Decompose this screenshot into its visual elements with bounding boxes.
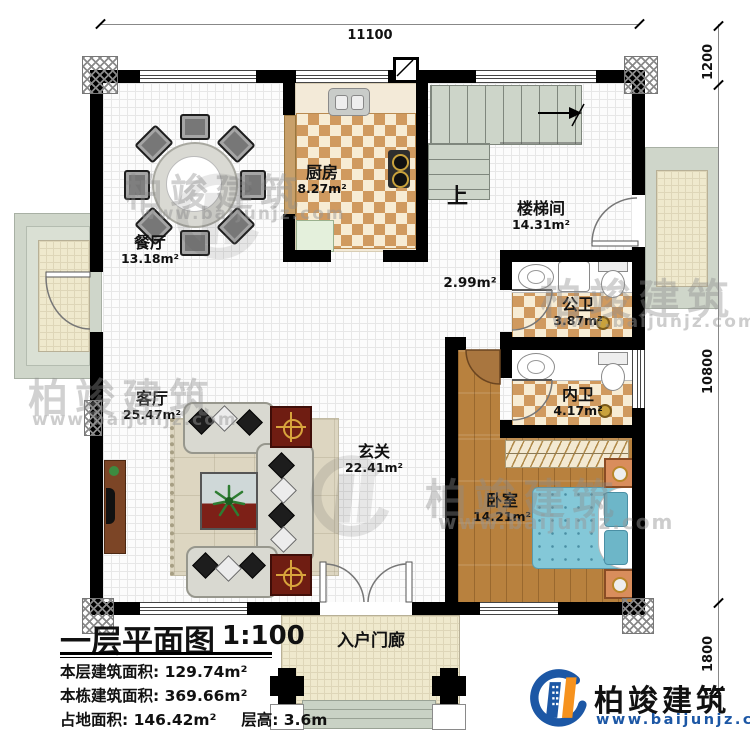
wall-segment bbox=[247, 602, 320, 615]
kitchen-fridge bbox=[296, 220, 334, 252]
wall-segment bbox=[632, 408, 645, 615]
window bbox=[480, 602, 558, 615]
wall-segment bbox=[383, 250, 428, 262]
room-name: 玄关 bbox=[345, 443, 403, 461]
stair-upper-flight bbox=[430, 85, 582, 145]
room-name: 厨房 bbox=[297, 164, 346, 182]
side-table bbox=[270, 406, 312, 448]
window bbox=[632, 350, 645, 408]
right-terrace-floor bbox=[656, 170, 708, 287]
wall-segment bbox=[500, 262, 512, 290]
stairwell-label: 楼梯间 14.31m² bbox=[512, 200, 570, 233]
wall-segment bbox=[458, 337, 466, 350]
wall-segment bbox=[90, 332, 103, 615]
stat-value: 369.66m² bbox=[165, 687, 248, 705]
room-area: 3.87m² bbox=[553, 314, 602, 328]
window bbox=[476, 70, 596, 83]
room-area: 13.18m² bbox=[121, 252, 179, 266]
kitchen-stove bbox=[388, 150, 410, 188]
tv-icon bbox=[106, 488, 115, 524]
foyer-label: 玄关 22.41m² bbox=[345, 443, 403, 476]
dimension-line bbox=[100, 24, 640, 25]
room-area: 25.47m² bbox=[123, 408, 181, 422]
dimension-line bbox=[718, 24, 719, 694]
wall-segment bbox=[632, 247, 645, 350]
company-website: www.baijunjz.com bbox=[596, 712, 750, 728]
kitchen-label: 厨房 8.27m² bbox=[297, 164, 346, 197]
room-name: 内卫 bbox=[553, 386, 602, 404]
dining-chair bbox=[124, 170, 150, 200]
plant-icon bbox=[202, 474, 256, 528]
stat-label: 层高: bbox=[241, 711, 278, 729]
kitchen-sink bbox=[328, 88, 370, 116]
wall-segment bbox=[500, 250, 645, 262]
stair-up-label: 上 bbox=[447, 180, 468, 210]
stat-value: 146.42m² bbox=[134, 711, 217, 729]
wall-segment bbox=[416, 83, 428, 262]
hallway-label: 2.99m² bbox=[443, 276, 496, 292]
wall-segment bbox=[90, 70, 103, 272]
wall-segment bbox=[500, 350, 512, 378]
public-bath-toilet bbox=[601, 270, 625, 298]
dimension-label: 10800 bbox=[701, 334, 716, 394]
window bbox=[140, 602, 247, 615]
bedroom-corridor-floor bbox=[458, 350, 500, 438]
wall-marker bbox=[84, 400, 102, 436]
stat-label: 本层建筑面积: bbox=[60, 663, 159, 681]
porch-column bbox=[432, 668, 466, 704]
room-area: 4.17m² bbox=[553, 404, 602, 418]
dimension-label: 11100 bbox=[340, 28, 400, 43]
wall-segment bbox=[500, 337, 645, 350]
dining-chair bbox=[240, 170, 266, 200]
bed-pillow bbox=[604, 530, 628, 565]
room-name: 公卫 bbox=[553, 296, 602, 314]
room-name: 客厅 bbox=[123, 390, 181, 408]
room-area: 14.31m² bbox=[512, 218, 570, 232]
wall-segment bbox=[500, 425, 645, 438]
stat-label: 本栋建筑面积: bbox=[60, 687, 159, 705]
left-terrace-floor bbox=[38, 240, 90, 352]
room-name: 卧室 bbox=[473, 492, 531, 510]
porch-step-side bbox=[432, 704, 466, 730]
stat-label: 占地面积: bbox=[60, 711, 128, 729]
side-table bbox=[270, 554, 312, 596]
room-area: 8.27m² bbox=[297, 182, 346, 196]
window bbox=[296, 70, 388, 83]
dimension-label: 1800 bbox=[701, 624, 716, 672]
room-name: 餐厅 bbox=[121, 234, 179, 252]
private-bath-label: 内卫 4.17m² bbox=[553, 386, 602, 419]
corner-marker bbox=[622, 598, 654, 634]
floor-plan-page: { "plan": { "title": "一层平面图", "scale": "… bbox=[0, 0, 750, 745]
public-bath-shower-tray bbox=[558, 261, 590, 292]
stat-value: 129.74m² bbox=[165, 663, 248, 681]
wall-segment bbox=[283, 83, 295, 115]
bedroom-label: 卧室 14.21m² bbox=[473, 492, 531, 525]
bed-pillow bbox=[604, 492, 628, 527]
corner-marker bbox=[624, 56, 658, 94]
dining-table-top bbox=[166, 156, 222, 212]
cabinet-plant-icon bbox=[109, 466, 119, 476]
room-area: 22.41m² bbox=[345, 461, 403, 475]
window bbox=[140, 70, 256, 83]
nightstand bbox=[604, 569, 634, 599]
room-area: 14.21m² bbox=[473, 510, 531, 524]
nightstand bbox=[604, 458, 634, 488]
stat-footprint-and-height: 占地面积: 146.42m² 层高: 3.6m bbox=[60, 708, 327, 730]
room-area: 2.99m² bbox=[443, 276, 496, 292]
stat-value: 3.6m bbox=[284, 711, 328, 729]
coffee-table bbox=[200, 472, 258, 530]
plan-scale: 1:100 bbox=[222, 621, 305, 651]
wall-segment bbox=[283, 250, 331, 262]
dining-chair bbox=[180, 114, 210, 140]
dining-chair bbox=[180, 230, 210, 256]
wall-segment bbox=[256, 70, 296, 83]
public-bath-label: 公卫 3.87m² bbox=[553, 296, 602, 329]
living-label: 客厅 25.47m² bbox=[123, 390, 181, 423]
dimension-label: 1200 bbox=[701, 32, 716, 80]
corner-marker bbox=[82, 56, 118, 94]
stat-floor-area: 本层建筑面积: 129.74m² bbox=[60, 660, 247, 682]
company-logo-icon bbox=[522, 667, 590, 733]
wall-segment bbox=[445, 337, 458, 602]
room-name: 楼梯间 bbox=[512, 200, 570, 218]
private-bath-sink bbox=[517, 353, 555, 381]
kitchen-counter bbox=[284, 115, 296, 217]
room-name: 入户门廊 bbox=[337, 632, 405, 652]
roof-marker bbox=[393, 57, 419, 83]
porch-column bbox=[270, 668, 304, 704]
wall-segment bbox=[412, 602, 480, 615]
stat-building-area: 本栋建筑面积: 369.66m² bbox=[60, 684, 247, 706]
public-bath-sink bbox=[518, 264, 554, 290]
private-bath-toilet bbox=[601, 363, 625, 391]
dining-label: 餐厅 13.18m² bbox=[121, 234, 179, 267]
title-rule bbox=[60, 652, 272, 658]
porch-label: 入户门廊 bbox=[337, 632, 405, 652]
